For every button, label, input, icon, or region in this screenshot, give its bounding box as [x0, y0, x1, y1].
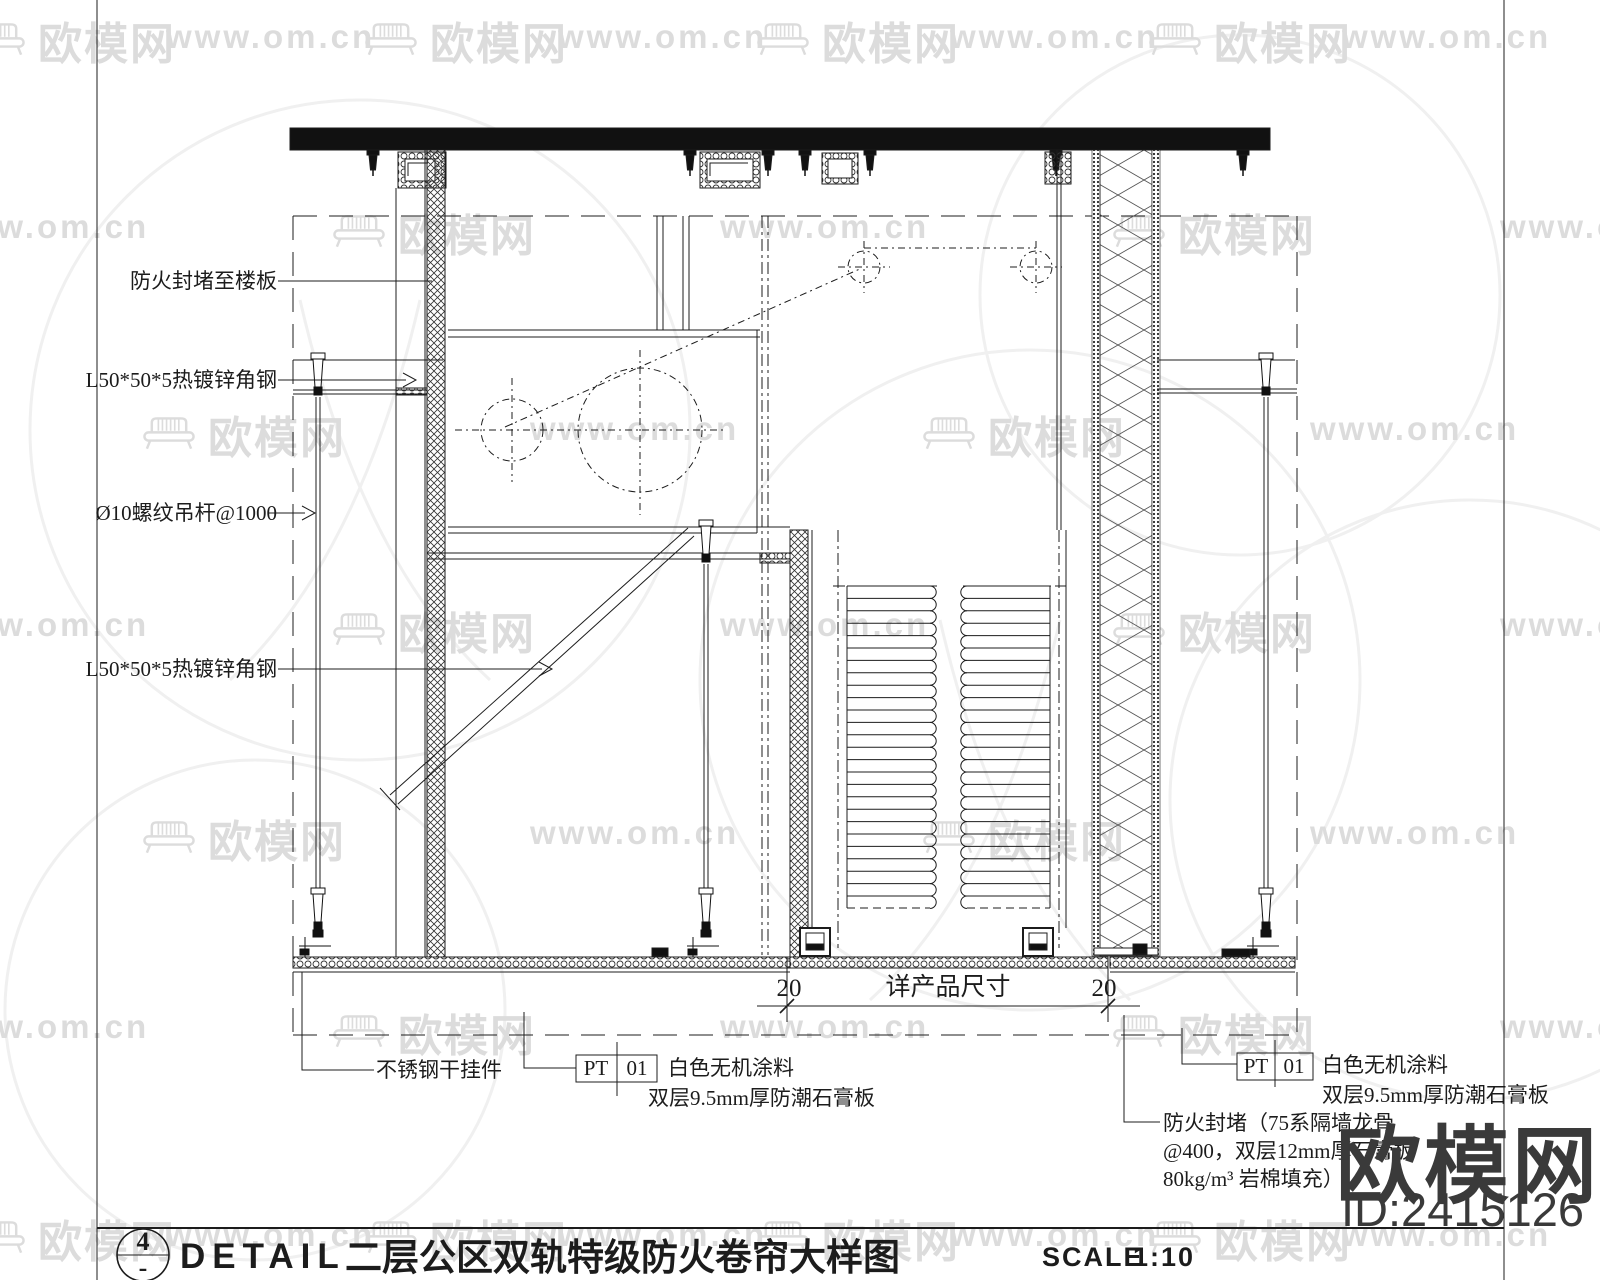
- fire-seal-note-line3: 80kg/m³ 岩棉填充）: [1163, 1167, 1344, 1191]
- label-stainless-hanger: 不锈钢干挂件: [376, 1058, 502, 1082]
- label-seal-to-slab: 防火封堵至楼板: [130, 269, 277, 293]
- bubble-number: 4: [137, 1227, 150, 1256]
- curtain-roller: [455, 241, 1062, 515]
- right-hanger-assembly: [1157, 353, 1297, 957]
- site-id-watermark: ID:2415126: [1341, 1182, 1584, 1237]
- upper-bulkhead: [427, 216, 790, 563]
- label-threaded-rod: Ø10螺纹吊杆@1000: [95, 501, 277, 525]
- title-scale-label: SCALE: [1042, 1242, 1144, 1272]
- left-hanger-assembly: [293, 353, 443, 957]
- floor-slab: [290, 128, 1270, 150]
- dim-center: 详产品尺寸: [885, 973, 1010, 1001]
- title-scale-value: 1:10: [1133, 1242, 1195, 1272]
- dim-left: 20: [777, 975, 802, 1002]
- label-angle-steel-brace: L50*50*5热镀锌角钢: [86, 657, 277, 681]
- partition-wall: [1092, 150, 1160, 956]
- detail-drawing: 防火封堵至楼板 L50*50*5热镀锌角钢 Ø10螺纹吊杆@1000 L50*5…: [0, 0, 1600, 1280]
- bubble-suffix: -: [139, 1253, 148, 1280]
- drawing-sheet: 欧模网www.om.cn欧模网www.om.cn欧模网www.om.cn欧模网w…: [0, 0, 1600, 1280]
- pt-code-left: PT: [584, 1056, 609, 1080]
- fire-curtain-slats: [833, 586, 1066, 908]
- note-left-line1: 白色无机涂料: [668, 1056, 794, 1080]
- pt-code-right: PT: [1244, 1054, 1269, 1078]
- title-drawing-name: 二层公区双轨特级防火卷帘大样图: [345, 1237, 900, 1278]
- note-left-line2: 双层9.5mm厚防潮石膏板: [648, 1086, 875, 1110]
- note-right-line1: 白色无机涂料: [1322, 1053, 1448, 1077]
- annotation-texts: 防火封堵至楼板 L50*50*5热镀锌角钢 Ø10螺纹吊杆@1000 L50*5…: [86, 269, 1549, 1280]
- center-hanger-rod: [687, 520, 719, 957]
- dim-right: 20: [1092, 975, 1117, 1002]
- pt-number-right: 01: [1284, 1054, 1305, 1078]
- title-detail-label: DETAIL: [180, 1237, 346, 1276]
- pt-number-left: 01: [627, 1056, 648, 1080]
- label-angle-steel-top: L50*50*5热镀锌角钢: [86, 368, 277, 392]
